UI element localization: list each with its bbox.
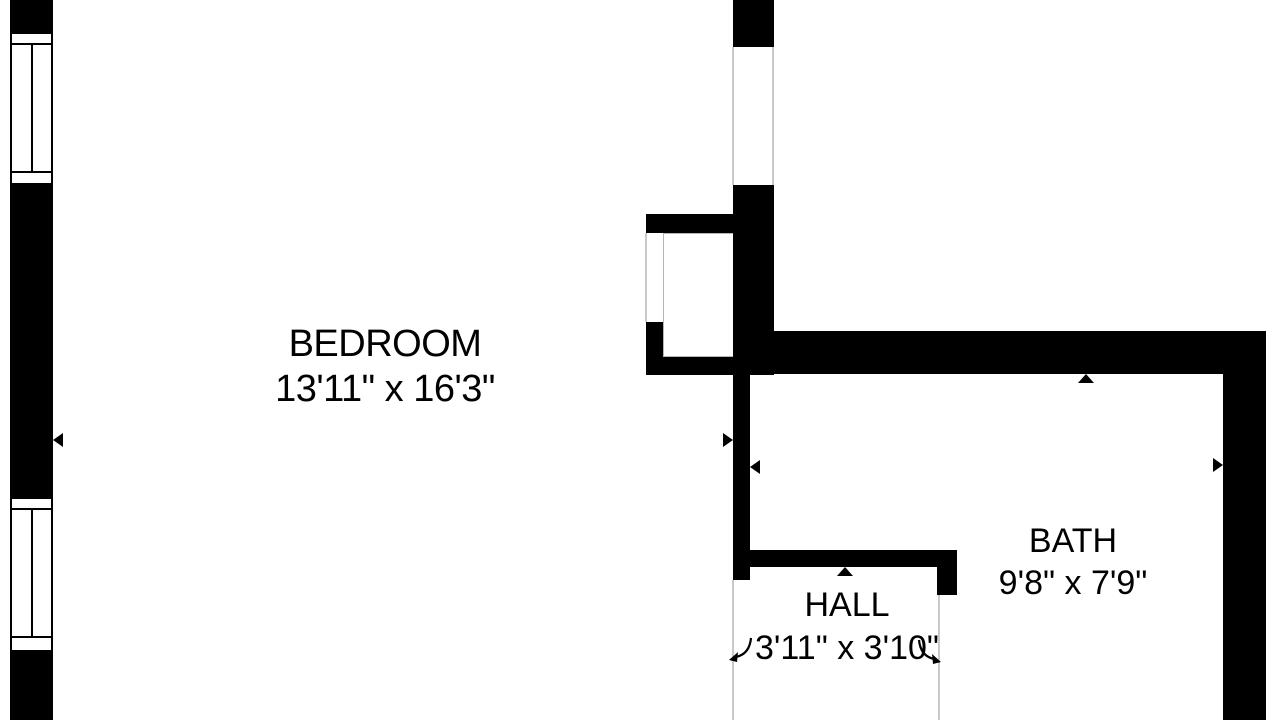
- room-name: BEDROOM: [165, 322, 605, 367]
- door-opening-jamb-line: [732, 47, 734, 185]
- door-opening-jamb-line: [772, 47, 774, 185]
- bedroom-label: BEDROOM 13'11" x 16'3": [165, 322, 605, 412]
- closet-opening-jamb-line: [645, 233, 647, 322]
- bedroom-hall-partition-wall: [733, 374, 750, 580]
- floor-plan: BEDROOM 13'11" x 16'3" BATH 9'8" x 7'9" …: [0, 0, 1280, 720]
- room-dimensions: 3'11" x 3'10": [717, 627, 977, 670]
- bath-label: BATH 9'8" x 7'9": [943, 520, 1203, 604]
- window-icon: [10, 32, 53, 185]
- window-icon: [10, 497, 53, 652]
- top-partition-wall-upper: [733, 0, 774, 47]
- window-mullion: [31, 45, 33, 171]
- room-dimensions: 9'8" x 7'9": [943, 562, 1203, 604]
- left-wall-arrow-icon: [53, 433, 63, 447]
- corridor-wall-arrow-icon: [750, 460, 760, 474]
- room-name: BATH: [943, 520, 1203, 562]
- hall-top-arrow-icon: [837, 567, 853, 576]
- bath-top-arrow-icon: [1078, 374, 1094, 383]
- bath-right-exterior-wall: [1223, 340, 1266, 720]
- window-mullion: [31, 510, 33, 636]
- bedroom-wall-arrow-icon: [723, 433, 733, 447]
- room-name: HALL: [717, 584, 977, 627]
- bath-top-wall: [733, 331, 1266, 374]
- room-dimensions: 13'11" x 16'3": [165, 367, 605, 412]
- hall-top-wall: [750, 550, 957, 567]
- closet-top-wall-stub: [646, 214, 735, 233]
- closet-nook-outline: [663, 233, 735, 357]
- bath-right-arrow-icon: [1213, 458, 1223, 472]
- hall-label: HALL 3'11" x 3'10": [717, 584, 977, 670]
